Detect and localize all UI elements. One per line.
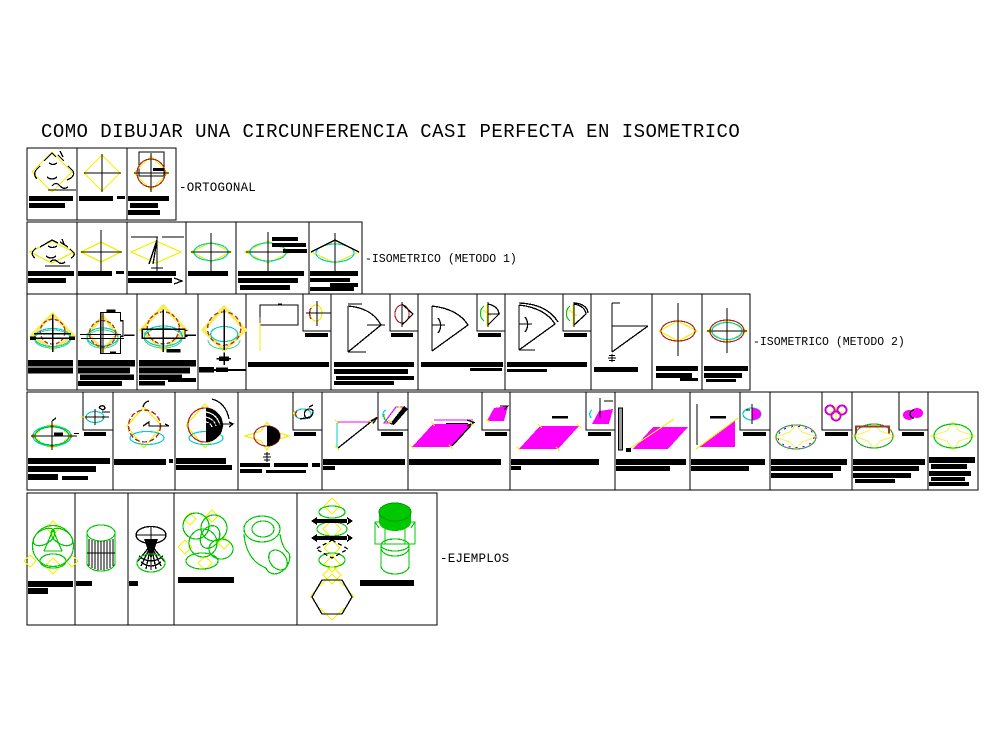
svg-text:COMO DIBUJAR UNA CIRCUNFERENCI: COMO DIBUJAR UNA CIRCUNFERENCIA CASI PER…: [41, 121, 740, 143]
svg-text:-ISOMETRICO (METODO 2): -ISOMETRICO (METODO 2): [753, 336, 905, 349]
svg-text:-ORTOGONAL: -ORTOGONAL: [179, 181, 256, 195]
svg-text:-EJEMPLOS: -EJEMPLOS: [440, 552, 509, 566]
svg-text:-ISOMETRICO (METODO 1): -ISOMETRICO (METODO 1): [365, 253, 517, 266]
